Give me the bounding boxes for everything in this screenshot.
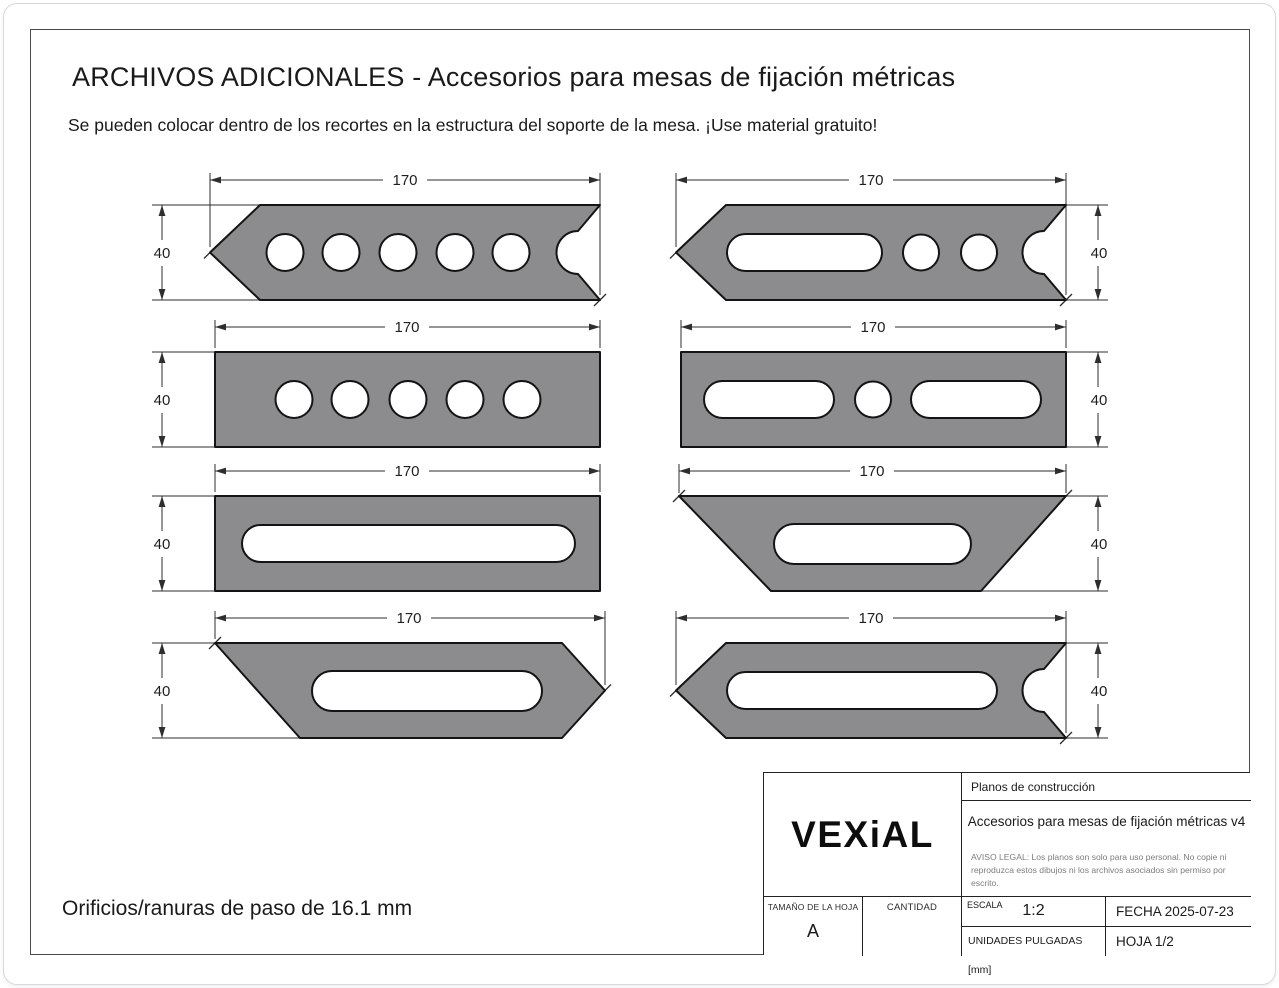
doc-title-cell: Accesorios para mesas de fijación métric… [961,801,1251,896]
quantity-cell: CANTIDAD [862,896,961,956]
scale-cell: ESCALA 1:2 [961,896,1105,926]
logo-cell: VEXiAL [764,773,961,896]
quantity-label: CANTIDAD [863,897,961,913]
scale-value: 1:2 [962,902,1105,920]
sheet-number-cell: HOJA 1/2 [1105,926,1251,956]
sheet: ARCHIVOS ADICIONALES - Accesorios para m… [0,0,1279,988]
date-cell: FECHA 2025-07-23 [1105,896,1251,926]
sheet-size-label: TAMAÑO DE LA HOJA [764,897,862,912]
vexial-logo: VEXiAL [791,814,934,856]
title-block: VEXiAL Planos de construcción Accesorios… [763,772,1250,955]
doc-type: Planos de construcción [961,773,1251,801]
sheet-size-cell: TAMAÑO DE LA HOJA A [764,896,862,956]
units-cell: UNIDADES PULGADAS [mm] [961,926,1105,956]
legal-notice: AVISO LEGAL: Los planos son solo para us… [971,851,1245,890]
doc-title: Accesorios para mesas de fijación métric… [962,814,1251,829]
sheet-size-value: A [764,921,862,942]
